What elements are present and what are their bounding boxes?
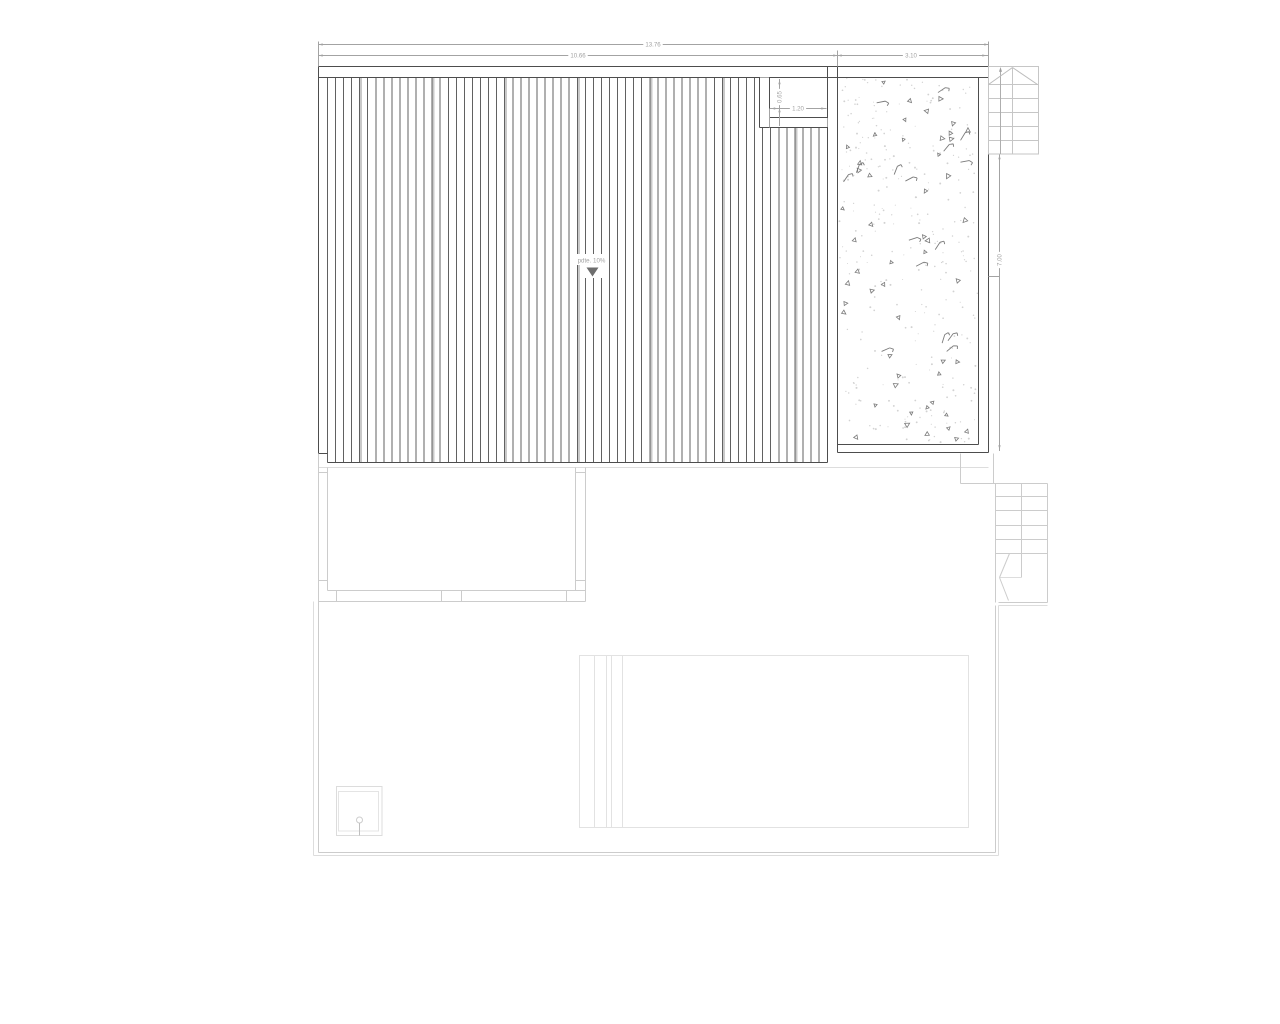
svg-text:13.76: 13.76 [645,42,661,49]
svg-text:1.20: 1.20 [792,106,804,113]
svg-text:3.10: 3.10 [905,53,917,60]
svg-text:pdte. 10%: pdte. 10% [578,258,606,265]
svg-text:7.00: 7.00 [997,253,1004,265]
svg-text:0.65: 0.65 [777,90,784,102]
svg-text:10.66: 10.66 [570,53,586,60]
